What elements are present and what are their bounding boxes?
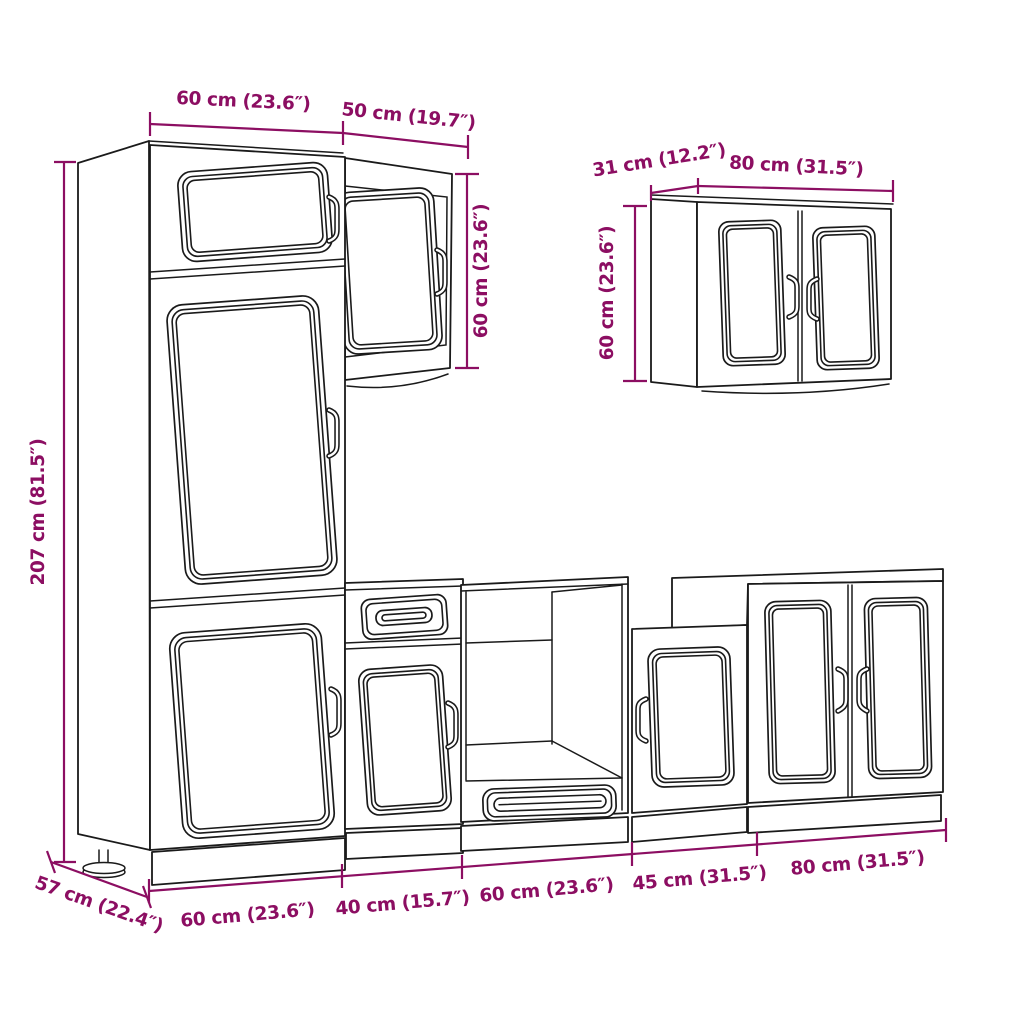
dimension-wall50-height: 60 cm (23.6″) [455, 174, 492, 368]
oven-cabinet-60 [461, 577, 628, 851]
drawer-handle [376, 607, 433, 626]
dimension-wall80-height: 60 cm (23.6″) [597, 206, 647, 381]
top-door-panel [177, 162, 333, 263]
dim-label-base-40: 40 cm (15.7″) [335, 887, 471, 920]
oven-drawer-front [482, 785, 616, 822]
kitchen-set-diagram: 60 cm (23.6″) 50 cm (19.7″) 60 cm (23.6″… [0, 0, 1024, 1024]
dim-label-wall80-height: 60 cm (23.6″) [597, 226, 618, 361]
dimension-wall80-width: 80 cm (31.5″) [698, 153, 893, 202]
drawer-front [361, 594, 449, 640]
base-cabinet-40 [345, 579, 463, 859]
base-cabinet-80 [748, 581, 943, 833]
right-door-panel [864, 597, 932, 779]
dimension-wall80-depth: 31 cm (12.2″) [591, 140, 727, 201]
wall-cabinet-80 [651, 195, 893, 393]
dim-label-base-80: 80 cm (31.5″) [790, 847, 926, 880]
dim-label-tall-height: 207 cm (81.5″) [28, 439, 49, 586]
dimension-wall50-width: 50 cm (19.7″) [341, 99, 477, 159]
wall-cabinet-50 [335, 158, 452, 388]
diagram-canvas: 60 cm (23.6″) 50 cm (19.7″) 60 cm (23.6″… [0, 0, 1024, 1024]
tall-cabinet [78, 141, 345, 885]
door-panel [648, 647, 735, 788]
left-door-panel [765, 600, 836, 784]
left-door-panel [719, 220, 786, 366]
right-door-panel [813, 226, 880, 370]
dim-label-tall-width: 60 cm (23.6″) [176, 88, 311, 115]
dim-label-base-60a: 60 cm (23.6″) [180, 899, 316, 932]
bottom-door-panel [169, 623, 336, 840]
adjustable-foot [83, 850, 125, 878]
dim-label-wall80-width: 80 cm (31.5″) [729, 153, 864, 181]
door-panel [358, 664, 452, 816]
middle-door-panel [166, 295, 338, 585]
dim-label-base-60b: 60 cm (23.6″) [479, 874, 615, 907]
dimension-tall-width: 60 cm (23.6″) [150, 88, 343, 145]
plinth [346, 828, 463, 859]
dim-label-base-45: 45 cm (31.5″) [632, 862, 768, 895]
dimension-tall-height: 207 cm (81.5″) [28, 162, 76, 862]
plinth [461, 817, 628, 851]
dim-label-wall50-width: 50 cm (19.7″) [341, 99, 477, 134]
dim-label-wall50-height: 60 cm (23.6″) [471, 204, 492, 339]
dim-label-wall80-depth: 31 cm (12.2″) [591, 140, 727, 182]
base-cabinet-45 [632, 625, 747, 842]
dim-label-tall-depth: 57 cm (22.4″) [32, 872, 166, 937]
